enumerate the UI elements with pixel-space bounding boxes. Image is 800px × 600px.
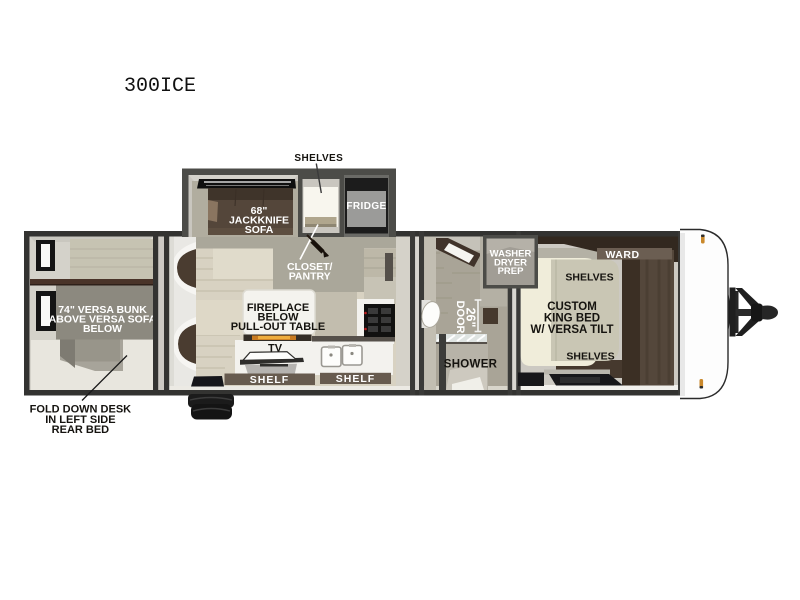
svg-text:PANTRY: PANTRY — [289, 271, 331, 283]
svg-text:300ICE: 300ICE — [124, 75, 196, 98]
svg-text:PULL-OUT TABLE: PULL-OUT TABLE — [231, 321, 326, 333]
svg-text:TV: TV — [268, 343, 283, 355]
svg-text:26": 26" — [464, 308, 478, 328]
svg-text:SHELVES: SHELVES — [566, 351, 614, 363]
svg-text:SOFA: SOFA — [245, 224, 274, 236]
svg-text:CUSTOM: CUSTOM — [547, 301, 597, 313]
svg-text:SHOWER: SHOWER — [444, 359, 498, 371]
svg-text:SHELVES: SHELVES — [294, 153, 343, 164]
svg-text:FRIDGE: FRIDGE — [346, 201, 386, 212]
svg-text:BELOW: BELOW — [83, 323, 122, 335]
svg-text:PREP: PREP — [498, 266, 525, 277]
svg-text:WARD: WARD — [605, 249, 639, 261]
svg-text:W/ VERSA TILT: W/ VERSA TILT — [530, 324, 613, 336]
svg-text:SHELVES: SHELVES — [565, 272, 613, 284]
svg-text:SHELF: SHELF — [336, 373, 375, 385]
svg-text:REAR BED: REAR BED — [52, 424, 110, 436]
svg-text:KING BED: KING BED — [544, 313, 600, 325]
svg-text:SHELF: SHELF — [250, 374, 289, 386]
